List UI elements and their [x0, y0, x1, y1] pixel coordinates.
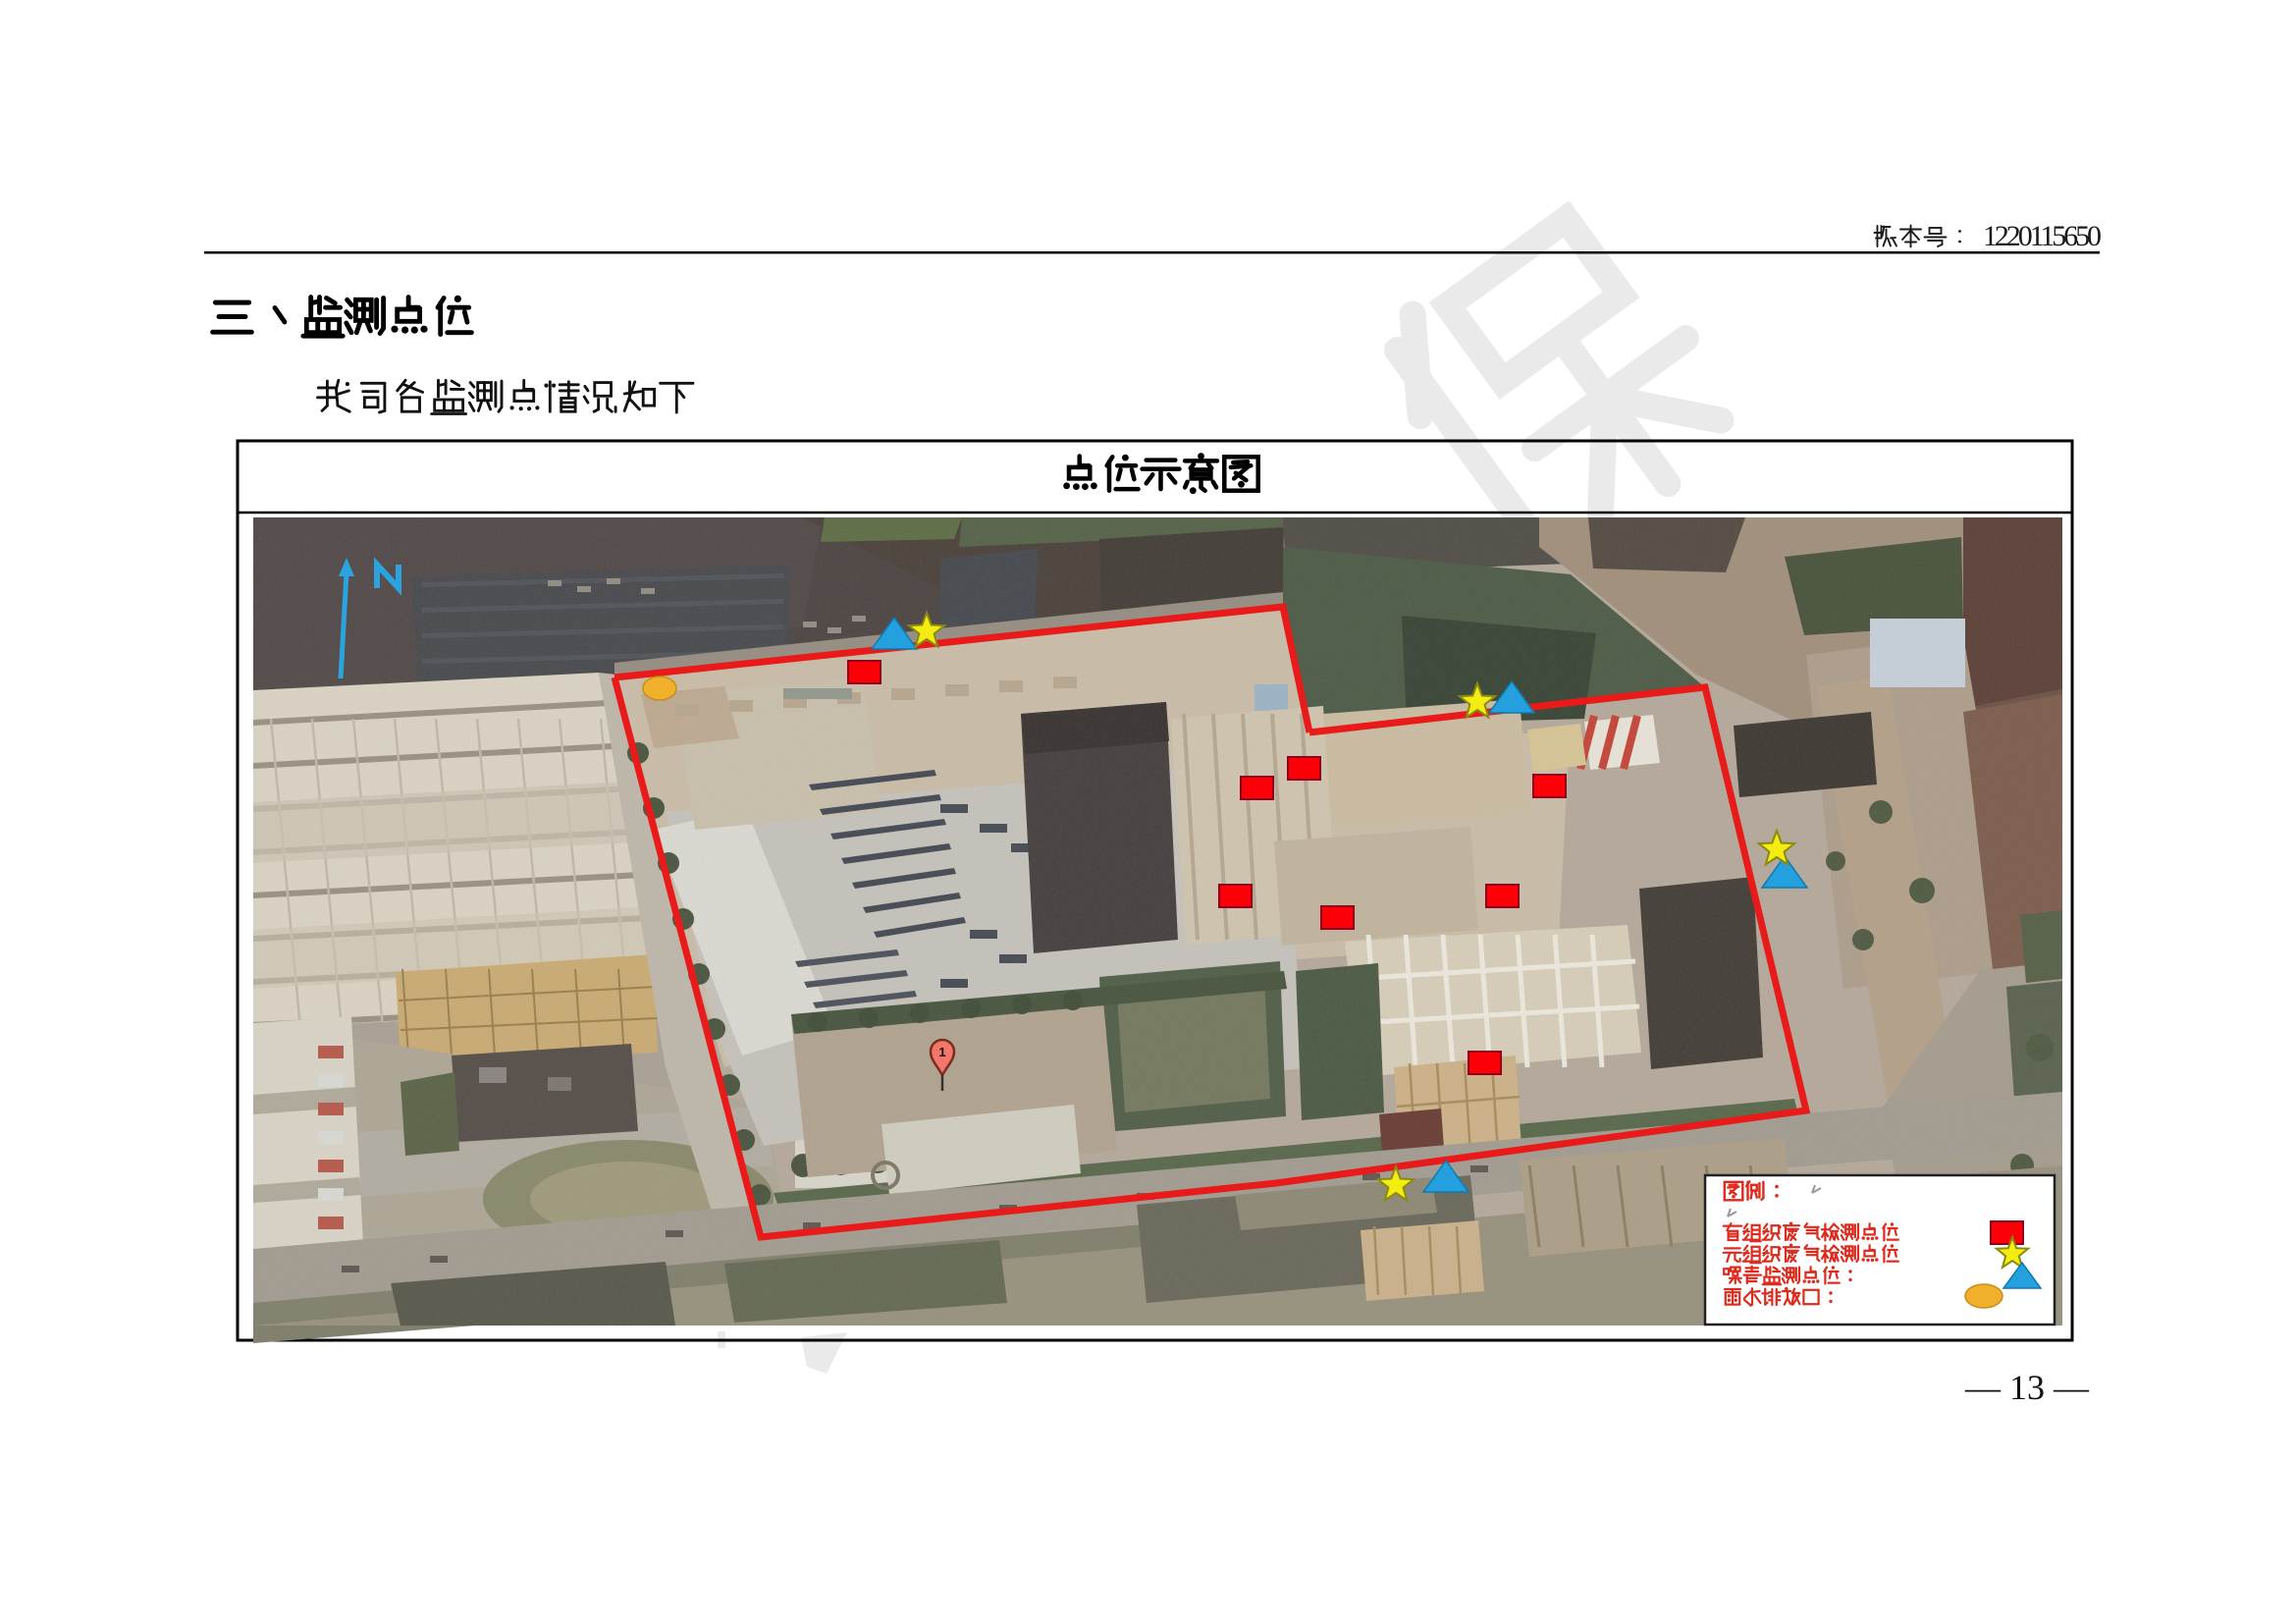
svg-text:— 13 —: — 13 —: [1964, 1368, 2090, 1407]
svg-text:1220115650: 1220115650: [1983, 220, 2101, 252]
svg-text:1: 1: [938, 1045, 945, 1059]
